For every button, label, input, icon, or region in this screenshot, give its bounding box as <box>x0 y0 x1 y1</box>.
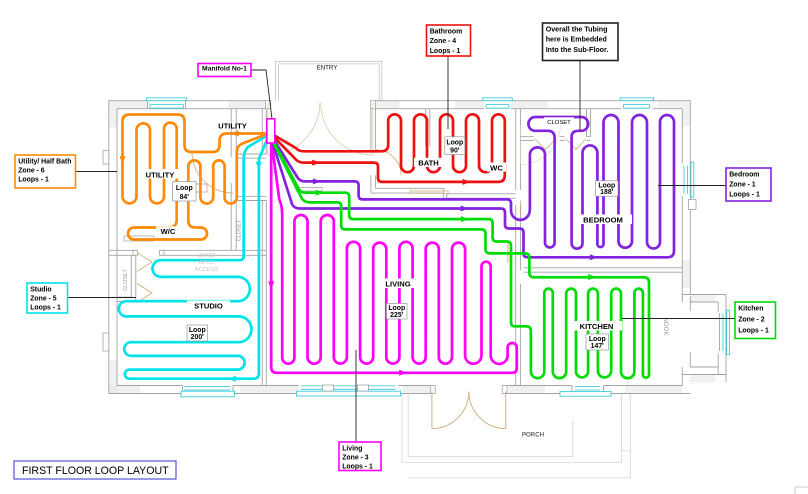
svg-text:BEDROOM: BEDROOM <box>583 215 623 224</box>
svg-text:Studio: Studio <box>30 286 51 293</box>
svg-text:Utility/ Half Bath: Utility/ Half Bath <box>18 158 71 165</box>
svg-text:CLOSET: CLOSET <box>237 219 243 241</box>
svg-text:200': 200' <box>191 334 204 341</box>
svg-text:Overall the Tubing: Overall the Tubing <box>546 25 608 33</box>
svg-text:STUDIO: STUDIO <box>194 302 223 311</box>
svg-text:Loops - 1: Loops - 1 <box>342 464 373 471</box>
svg-text:147': 147' <box>591 343 604 350</box>
svg-text:Zone - 1: Zone - 1 <box>729 181 756 188</box>
svg-text:Zone - 4: Zone - 4 <box>430 38 457 45</box>
svg-text:Zone - 6: Zone - 6 <box>18 168 45 175</box>
svg-text:225': 225' <box>390 312 403 319</box>
svg-text:Loops - 1: Loops - 1 <box>729 191 760 198</box>
svg-text:NOOK: NOOK <box>662 317 669 336</box>
svg-text:LIVING: LIVING <box>385 279 410 288</box>
svg-text:Loops - 1: Loops - 1 <box>430 48 461 55</box>
svg-text:ENTRY: ENTRY <box>317 64 338 71</box>
svg-text:Kitchen: Kitchen <box>738 305 763 312</box>
svg-text:Loops - 1: Loops - 1 <box>30 305 61 312</box>
svg-text:PORCH: PORCH <box>522 432 544 439</box>
svg-text:30X22: 30X22 <box>198 253 215 259</box>
svg-text:Bedroom: Bedroom <box>729 171 759 178</box>
svg-text:Loops - 1: Loops - 1 <box>738 327 769 334</box>
svg-text:90': 90' <box>450 147 460 154</box>
svg-text:KITCHEN: KITCHEN <box>580 322 614 331</box>
svg-text:Manifold No-1: Manifold No-1 <box>202 66 247 73</box>
svg-text:BATH: BATH <box>418 159 439 168</box>
svg-text:Loop: Loop <box>176 185 193 192</box>
svg-text:Zone - 5: Zone - 5 <box>30 296 57 303</box>
svg-text:84': 84' <box>180 194 190 201</box>
svg-text:ACCESS: ACCESS <box>195 267 219 273</box>
svg-text:Bathroom: Bathroom <box>430 28 463 35</box>
svg-text:Loop: Loop <box>189 327 206 334</box>
svg-text:Into the Sub-Floor.: Into the Sub-Floor. <box>546 46 609 54</box>
svg-text:Loop: Loop <box>589 336 606 343</box>
svg-text:CLOSET: CLOSET <box>547 120 571 126</box>
svg-text:188': 188' <box>600 189 613 196</box>
svg-text:Zone - 3: Zone - 3 <box>342 455 369 462</box>
svg-text:here is Embedded: here is Embedded <box>546 36 607 44</box>
svg-text:W/C: W/C <box>161 227 176 236</box>
svg-text:UTILITY: UTILITY <box>218 121 247 130</box>
svg-text:ATTIC: ATTIC <box>198 260 214 266</box>
svg-text:Loop: Loop <box>446 139 463 146</box>
svg-text:Zone - 2: Zone - 2 <box>738 316 765 323</box>
svg-text:Loops - 1: Loops - 1 <box>18 177 49 184</box>
svg-text:UTILITY: UTILITY <box>146 170 175 179</box>
svg-text:WC: WC <box>490 163 503 172</box>
svg-text:Living: Living <box>342 445 362 452</box>
svg-text:CLOSET: CLOSET <box>123 269 129 291</box>
svg-text:FIRST FLOOR LOOP LAYOUT: FIRST FLOOR LOOP LAYOUT <box>22 465 169 477</box>
